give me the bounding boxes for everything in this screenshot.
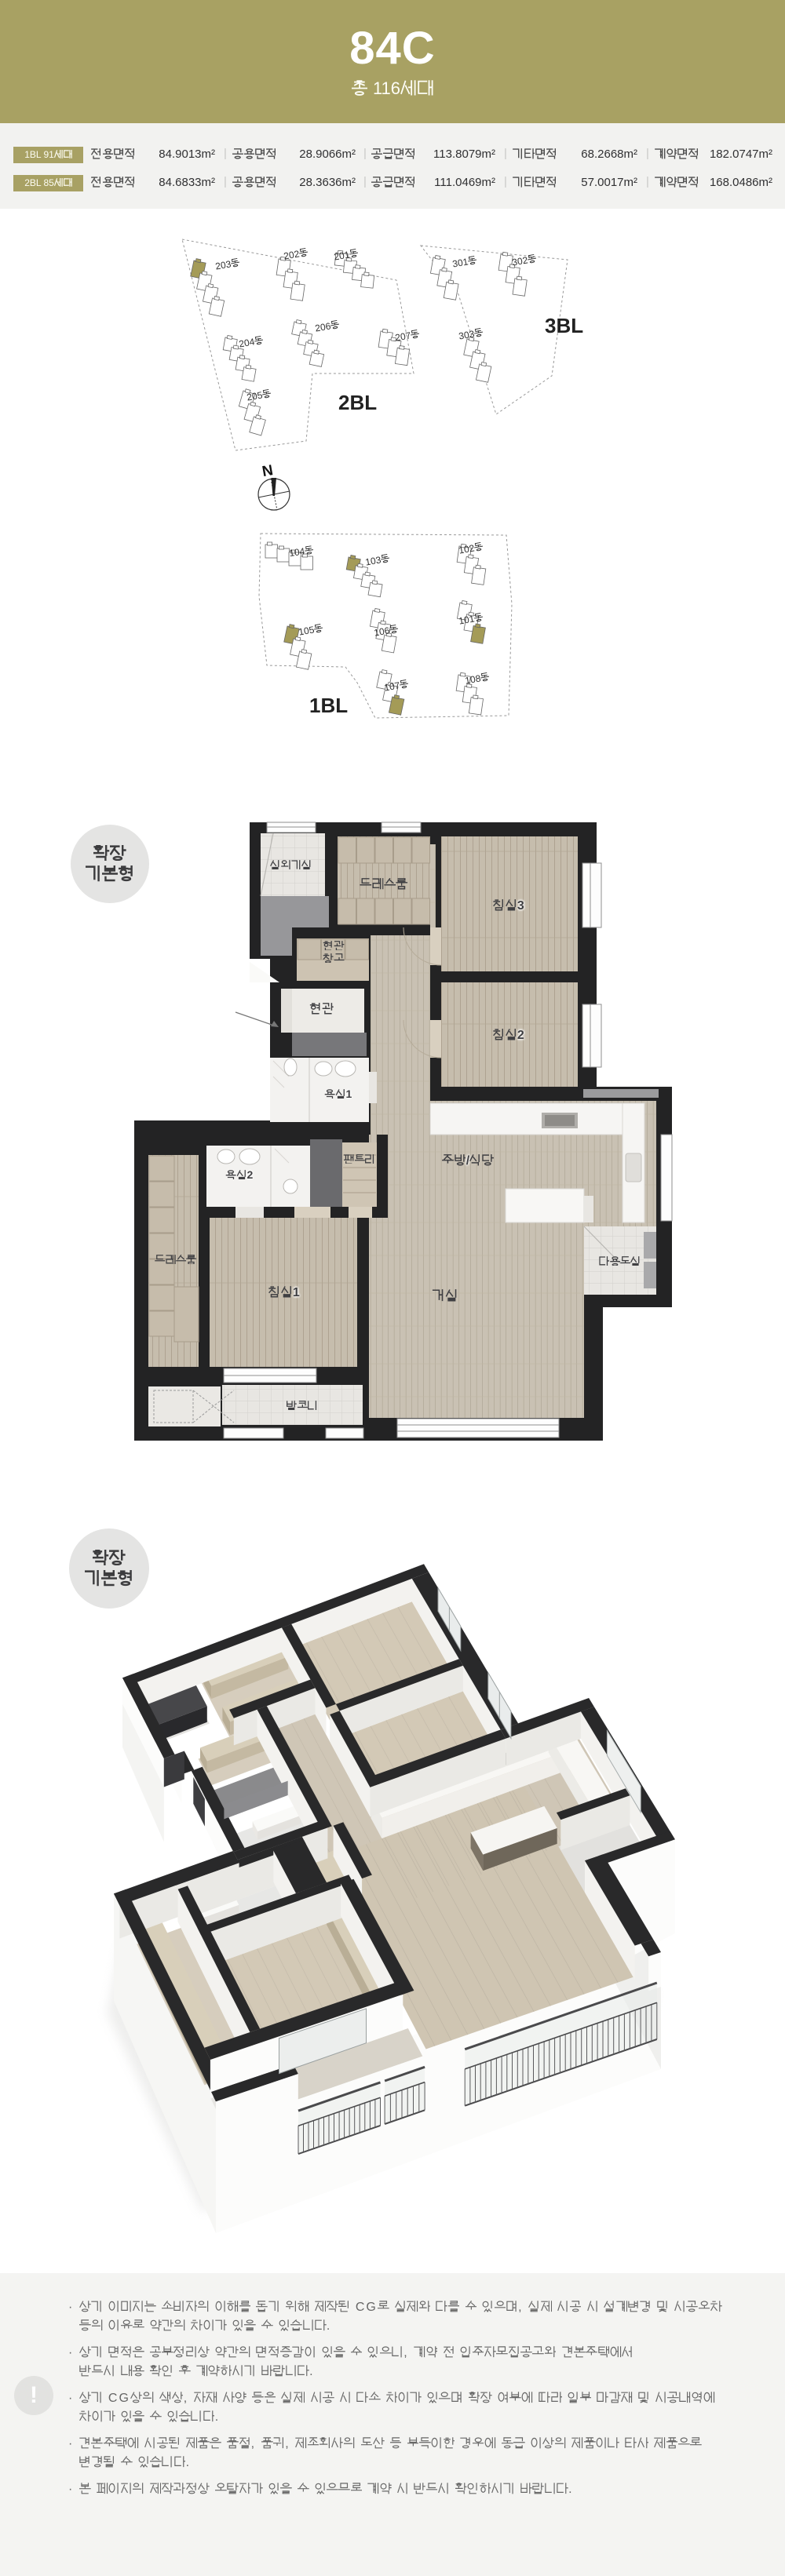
svg-text:2BL: 2BL [338,391,377,414]
svg-text:1BL: 1BL [309,694,348,717]
svg-text:3BL: 3BL [545,314,583,337]
svg-text:N: N [261,462,274,480]
